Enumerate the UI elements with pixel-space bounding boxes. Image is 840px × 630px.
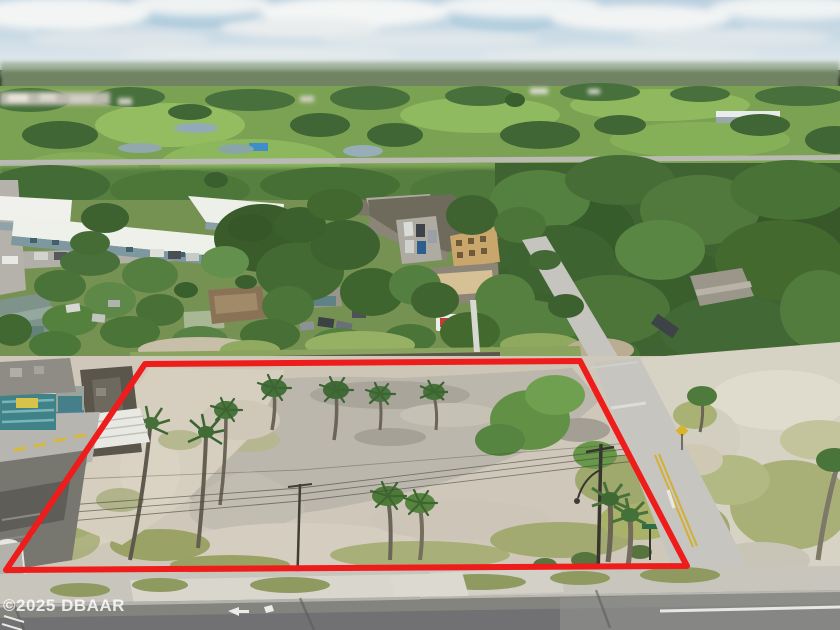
- svg-text:©2025 DBAAR: ©2025 DBAAR: [3, 596, 125, 615]
